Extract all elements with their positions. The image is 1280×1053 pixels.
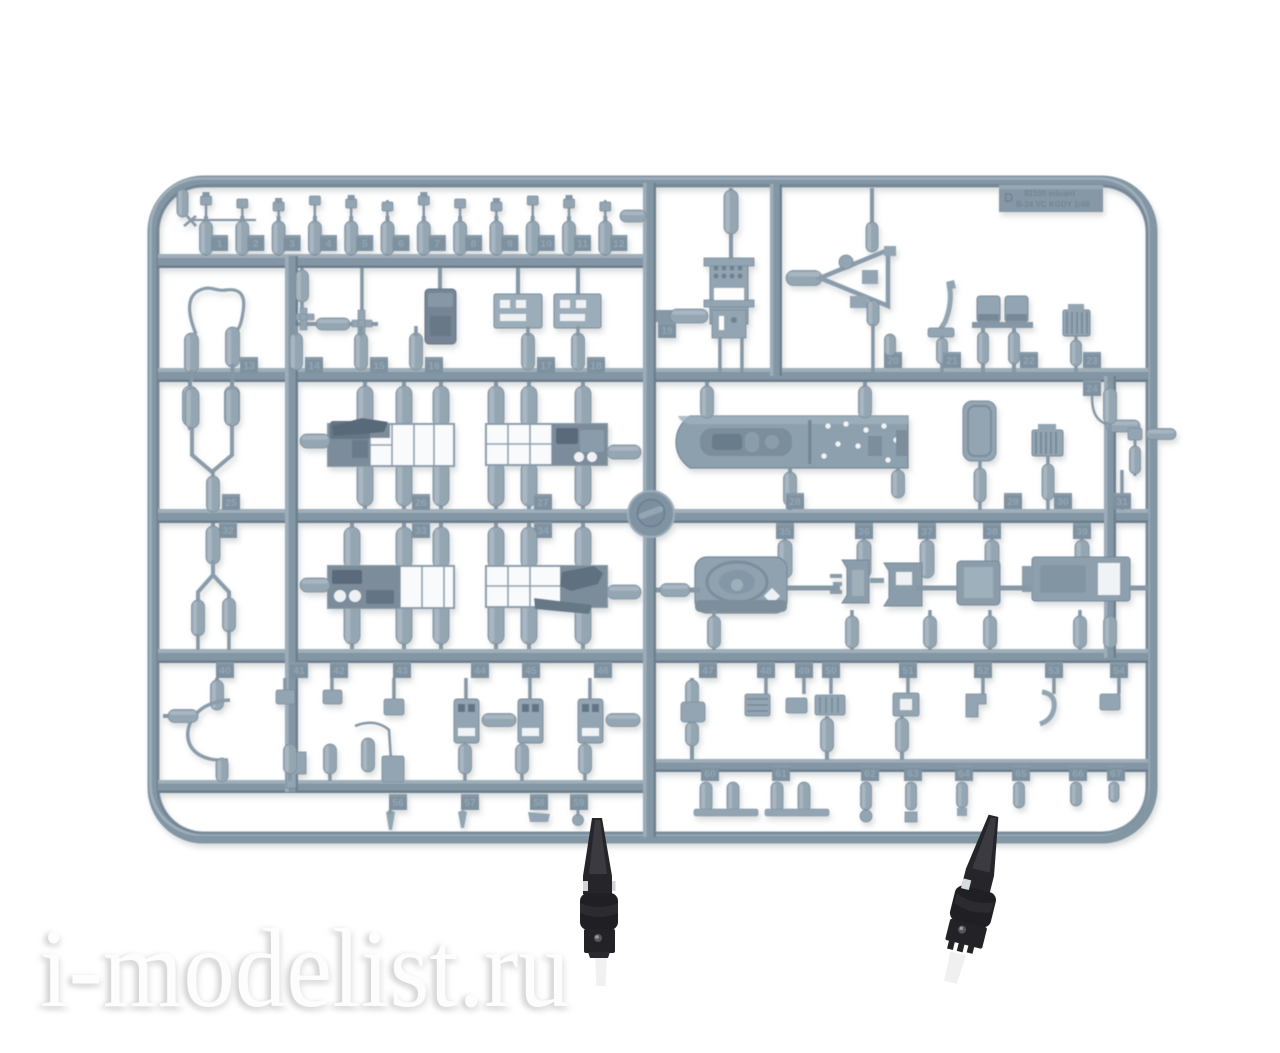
svg-text:56: 56 bbox=[392, 797, 404, 809]
svg-text:40: 40 bbox=[219, 665, 231, 677]
svg-text:34: 34 bbox=[537, 525, 549, 537]
svg-text:37: 37 bbox=[921, 526, 933, 538]
svg-text:36: 36 bbox=[858, 526, 870, 538]
svg-text:26: 26 bbox=[415, 497, 427, 509]
svg-text:13: 13 bbox=[243, 360, 255, 372]
svg-text:45: 45 bbox=[525, 665, 537, 677]
svg-text:2: 2 bbox=[253, 238, 259, 250]
svg-text:15: 15 bbox=[373, 360, 385, 372]
svg-text:57: 57 bbox=[464, 797, 476, 809]
svg-text:7: 7 bbox=[434, 238, 440, 250]
svg-text:60: 60 bbox=[704, 768, 716, 780]
svg-text:65: 65 bbox=[1015, 768, 1027, 780]
svg-text:5: 5 bbox=[362, 238, 368, 250]
svg-text:23: 23 bbox=[1086, 355, 1098, 367]
svg-text:38: 38 bbox=[986, 526, 998, 538]
svg-text:i-modelist.ru: i-modelist.ru bbox=[40, 907, 570, 1031]
svg-text:58: 58 bbox=[533, 797, 545, 809]
svg-text:52: 52 bbox=[977, 665, 989, 677]
svg-text:11: 11 bbox=[577, 238, 588, 250]
svg-text:49: 49 bbox=[798, 665, 810, 677]
svg-text:D: D bbox=[1004, 190, 1013, 205]
svg-text:27: 27 bbox=[537, 497, 549, 509]
svg-text:59: 59 bbox=[573, 797, 585, 809]
svg-text:35: 35 bbox=[779, 526, 791, 538]
svg-text:64: 64 bbox=[958, 768, 970, 780]
svg-text:14: 14 bbox=[308, 360, 320, 372]
svg-text:51: 51 bbox=[902, 665, 914, 677]
svg-text:6: 6 bbox=[398, 238, 404, 250]
svg-text:48: 48 bbox=[760, 665, 772, 677]
svg-text:4: 4 bbox=[325, 238, 331, 250]
svg-text:9: 9 bbox=[507, 238, 513, 250]
svg-text:12: 12 bbox=[613, 238, 625, 250]
svg-text:8: 8 bbox=[471, 238, 477, 250]
svg-text:25: 25 bbox=[225, 497, 237, 509]
svg-text:29: 29 bbox=[1007, 496, 1019, 508]
svg-text:66: 66 bbox=[1072, 768, 1084, 780]
svg-text:18: 18 bbox=[590, 360, 602, 372]
svg-text:10: 10 bbox=[540, 238, 552, 250]
svg-text:50: 50 bbox=[825, 665, 837, 677]
svg-text:43: 43 bbox=[396, 665, 408, 677]
svg-text:1: 1 bbox=[217, 238, 223, 250]
svg-text:B-24 VC KGDY 1/48: B-24 VC KGDY 1/48 bbox=[1016, 200, 1090, 209]
svg-text:3: 3 bbox=[289, 238, 295, 250]
svg-text:19: 19 bbox=[661, 325, 673, 337]
svg-text:24: 24 bbox=[1086, 383, 1098, 395]
svg-text:16: 16 bbox=[428, 360, 440, 372]
svg-text:17: 17 bbox=[540, 360, 552, 372]
svg-text:32: 32 bbox=[222, 525, 234, 537]
svg-text:41: 41 bbox=[293, 665, 305, 677]
svg-text:21: 21 bbox=[946, 355, 958, 367]
svg-text:44: 44 bbox=[474, 665, 486, 677]
svg-text:62: 62 bbox=[864, 768, 876, 780]
svg-text:61: 61 bbox=[775, 768, 787, 780]
svg-text:63: 63 bbox=[907, 768, 919, 780]
svg-text:33: 33 bbox=[415, 525, 427, 537]
svg-text:47: 47 bbox=[702, 665, 714, 677]
svg-text:82100 eduard: 82100 eduard bbox=[1024, 189, 1075, 198]
svg-text:39: 39 bbox=[1076, 526, 1088, 538]
svg-text:28: 28 bbox=[789, 496, 801, 508]
svg-text:31: 31 bbox=[1116, 496, 1128, 508]
svg-text:54: 54 bbox=[1113, 665, 1125, 677]
svg-text:22: 22 bbox=[1023, 355, 1035, 367]
svg-text:67: 67 bbox=[1110, 768, 1122, 780]
svg-text:20: 20 bbox=[887, 355, 899, 367]
svg-text:30: 30 bbox=[1057, 496, 1069, 508]
svg-text:42: 42 bbox=[333, 665, 345, 677]
svg-text:53: 53 bbox=[1048, 665, 1060, 677]
svg-text:46: 46 bbox=[597, 665, 609, 677]
